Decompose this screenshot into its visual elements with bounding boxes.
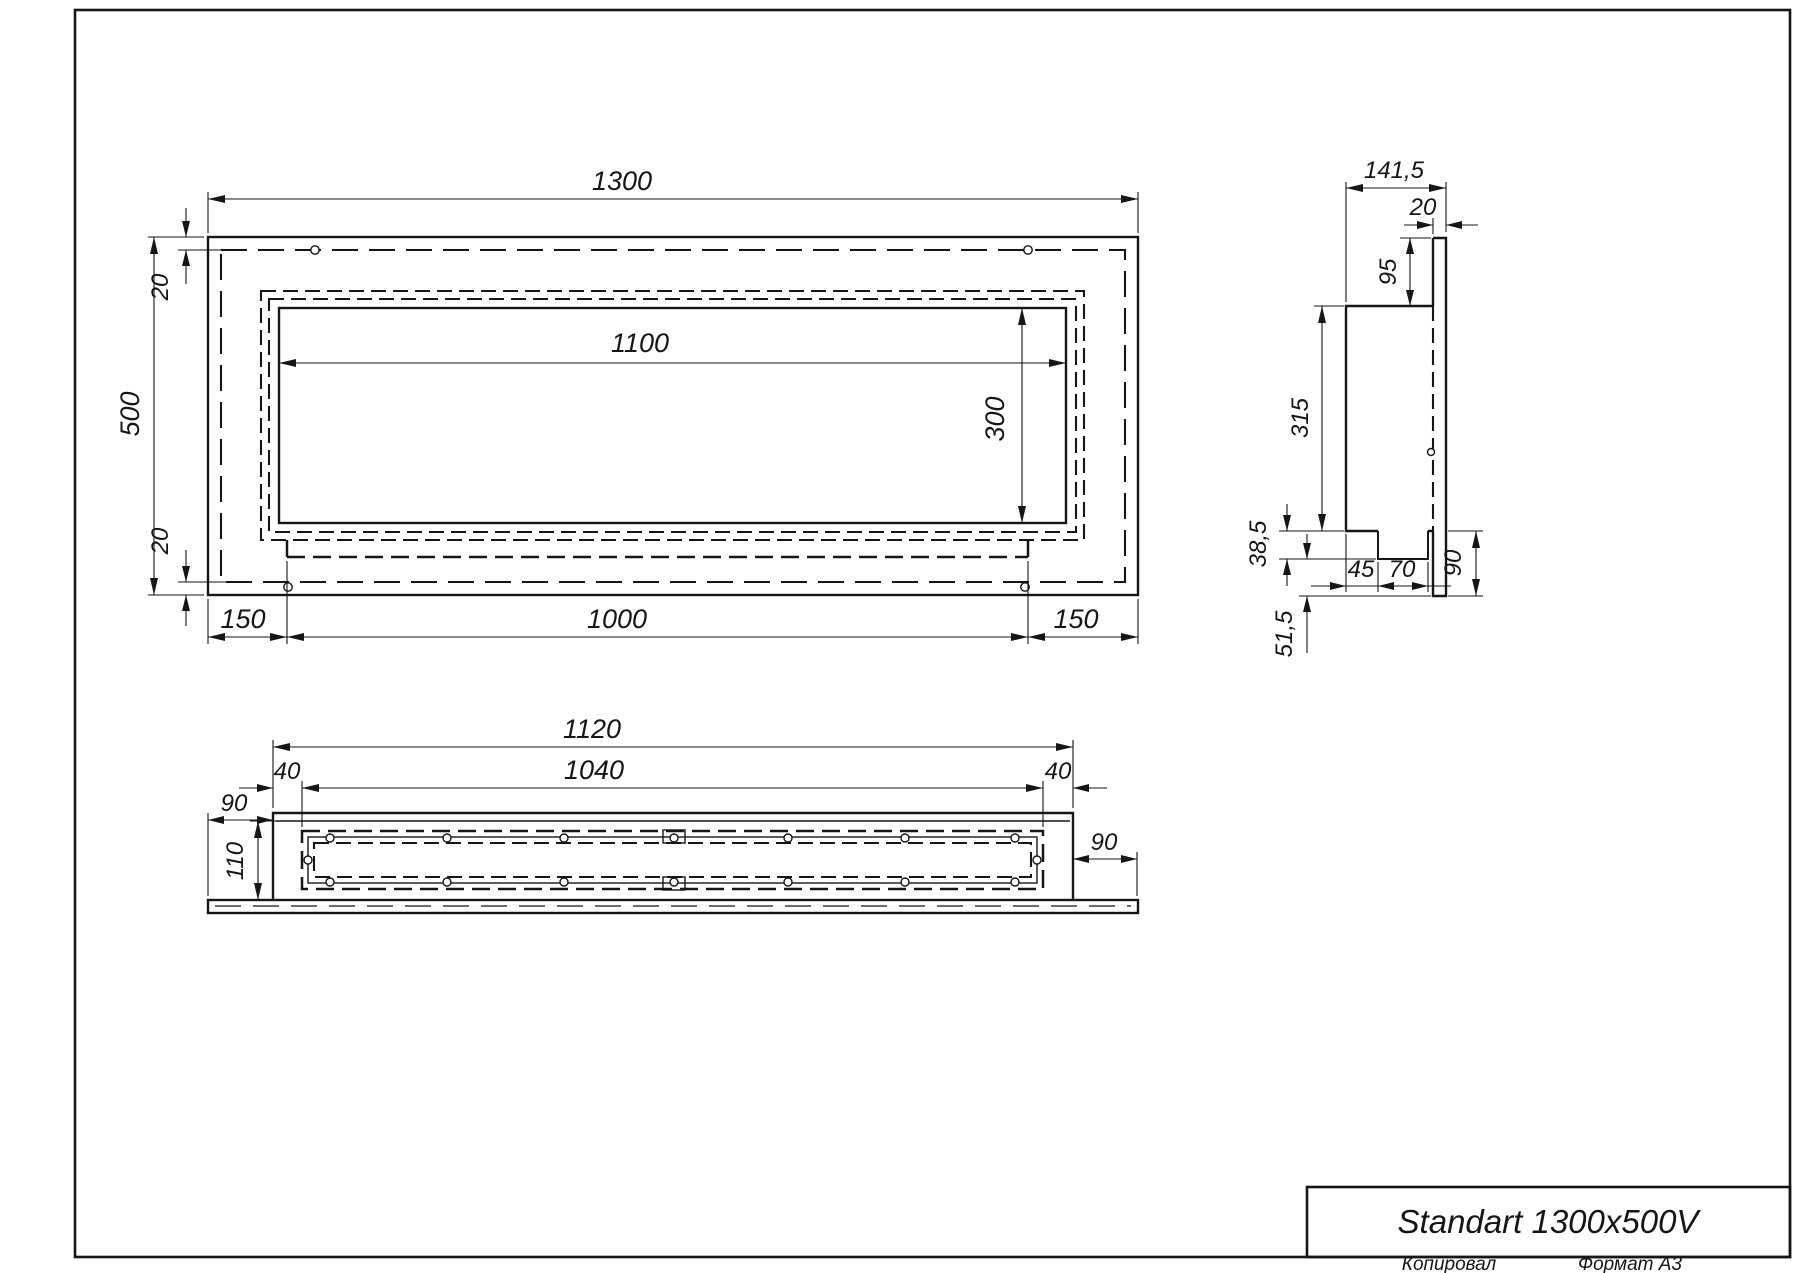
dim-line <box>273 740 1073 808</box>
side-plate <box>1433 238 1446 596</box>
title-block: Standart 1300x500V <box>1307 1187 1790 1257</box>
dim-side-tray-inset: 45 <box>1348 556 1375 583</box>
dim-line <box>208 561 1138 644</box>
side-body <box>1346 306 1433 531</box>
dim-front-burner-width: 1000 <box>587 604 647 634</box>
dim-side-depth: 141,5 <box>1364 157 1425 184</box>
sheet-border <box>75 10 1790 1257</box>
dim-front-margin-left: 150 <box>220 604 265 634</box>
dim-front-flange-top: 20 <box>147 273 174 301</box>
dim-front-height: 500 <box>115 391 145 436</box>
dim-line <box>178 550 226 626</box>
dim-side-tray-drop: 38,5 <box>1245 520 1272 567</box>
dim-line <box>208 192 1138 233</box>
hole-mark <box>1428 449 1435 456</box>
dim-line <box>1299 534 1431 653</box>
dim-side-bottom-margin: 90 <box>1440 549 1467 576</box>
dim-bottom-inner-depth: 110 <box>222 841 249 880</box>
drawing-title: Standart 1300x500V <box>1398 1203 1702 1240</box>
hole-mark <box>284 583 292 591</box>
dim-line <box>239 781 1107 827</box>
hole-mark <box>311 246 319 254</box>
format-label: Формат А3 <box>1578 1254 1682 1273</box>
dim-bottom-chamber-width: 1040 <box>564 755 624 785</box>
drawing-sheet: 1300 500 20 20 1100 300 150 <box>0 0 1800 1273</box>
dim-front-width: 1300 <box>592 166 652 196</box>
side-view: 141,5 20 95 315 38,5 51,5 45 70 <box>1245 157 1483 657</box>
dim-side-top-offset: 95 <box>1375 258 1402 285</box>
hole-mark <box>1024 246 1032 254</box>
dim-bottom-body-width: 1120 <box>563 714 621 744</box>
bottom-view: 1120 1040 40 40 90 110 90 <box>208 714 1138 913</box>
dim-front-margin-right: 150 <box>1053 604 1098 634</box>
technical-drawing: 1300 500 20 20 1100 300 150 <box>0 0 1800 1273</box>
bottom-body <box>273 813 1073 900</box>
bottom-chamber-hidden-inner <box>314 843 1031 877</box>
dim-front-flange-bottom: 20 <box>147 527 174 555</box>
front-opening <box>279 308 1066 523</box>
dim-side-below-plate: 51,5 <box>1271 610 1298 657</box>
front-opening-hidden-2 <box>261 291 1084 540</box>
dim-bottom-inset-right: 40 <box>1045 758 1072 785</box>
side-tray <box>1378 531 1428 559</box>
dim-bottom-margin-right: 90 <box>1091 829 1118 856</box>
dim-side-tray-width: 70 <box>1389 556 1416 583</box>
copied-label: Копировал <box>1402 1254 1497 1273</box>
dim-line <box>1400 238 1431 306</box>
dim-front-opening-height: 300 <box>980 396 1010 441</box>
dim-bottom-margin-left: 90 <box>221 790 248 817</box>
dim-bottom-inset-left: 40 <box>274 758 301 785</box>
dim-side-plate-thickness: 20 <box>1409 194 1437 221</box>
front-opening-hidden-1 <box>269 299 1076 532</box>
dim-side-body-height: 315 <box>1287 397 1314 438</box>
front-view: 1300 500 20 20 1100 300 150 <box>115 166 1138 644</box>
dim-front-opening-width: 1100 <box>611 328 669 358</box>
dim-line <box>178 208 226 284</box>
bottom-hole-marks <box>304 834 1041 886</box>
front-hidden-burner <box>287 540 1028 557</box>
